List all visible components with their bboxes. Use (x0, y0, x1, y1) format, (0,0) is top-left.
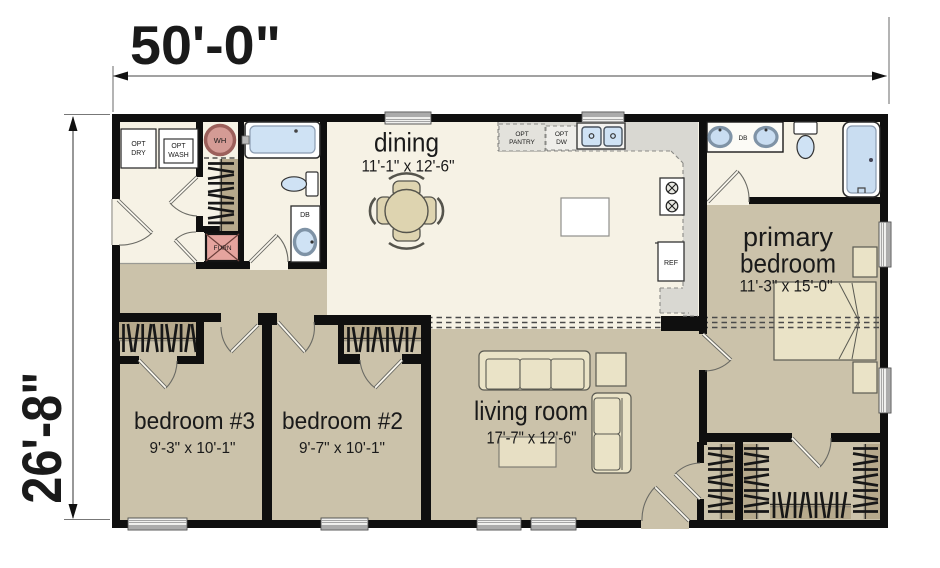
svg-text:WH: WH (214, 136, 227, 145)
svg-text:DW: DW (556, 139, 568, 146)
svg-text:OPT: OPT (171, 143, 186, 150)
svg-text:OPT: OPT (515, 131, 528, 138)
svg-text:OPT: OPT (131, 141, 146, 148)
svg-text:PANTRY: PANTRY (509, 139, 535, 146)
svg-text:9'-7" x 10'-1": 9'-7" x 10'-1" (299, 440, 385, 457)
svg-text:OPT: OPT (555, 131, 568, 138)
svg-text:dining: dining (374, 128, 439, 158)
svg-text:50'-0": 50'-0" (130, 14, 281, 76)
svg-text:17'-7" x 12'-6": 17'-7" x 12'-6" (487, 428, 577, 448)
svg-text:DB: DB (738, 135, 747, 142)
svg-text:26'-8": 26'-8" (10, 372, 73, 504)
svg-text:11'-1" x 12'-6": 11'-1" x 12'-6" (362, 157, 455, 176)
svg-text:WASH: WASH (168, 152, 188, 159)
svg-text:DRY: DRY (131, 150, 146, 157)
svg-text:9'-3" x 10'-1": 9'-3" x 10'-1" (150, 440, 236, 457)
svg-text:bedroom #2: bedroom #2 (282, 408, 403, 435)
svg-text:REF: REF (664, 260, 678, 267)
svg-text:DB: DB (300, 212, 310, 219)
svg-text:primary: primary (743, 222, 833, 252)
svg-text:living room: living room (474, 396, 588, 426)
svg-text:FURN: FURN (213, 245, 231, 252)
svg-text:bedroom #3: bedroom #3 (134, 408, 255, 435)
svg-text:11'-3" x 15'-0": 11'-3" x 15'-0" (740, 277, 833, 296)
svg-text:bedroom: bedroom (740, 249, 836, 279)
